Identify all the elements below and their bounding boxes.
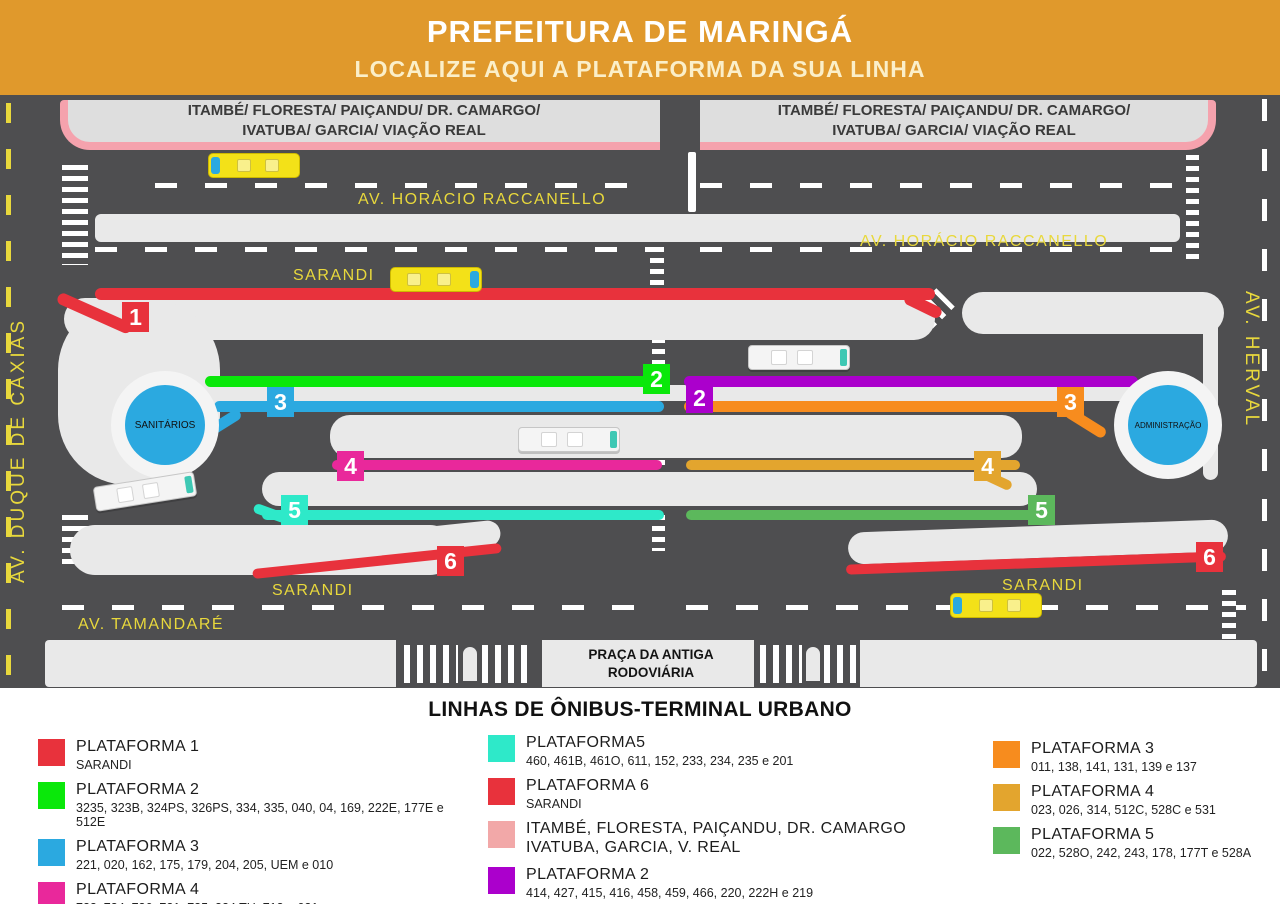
legend-item-title: PLATAFORMA 2 — [526, 866, 813, 884]
sanitarios-circle: SANITÁRIOS — [125, 385, 205, 465]
street-label-duque-de-caxias: AV. DUQUE DE CAXIAS — [8, 300, 44, 600]
platform-badge-5-green: 5 — [1028, 495, 1055, 525]
praca-label: PRAÇA DA ANTIGA RODOVIÁRIA — [545, 640, 757, 687]
legend-item-routes: IVATUBA, GARCIA, V. REAL — [526, 839, 906, 857]
platform-line-4-gold — [686, 460, 1020, 470]
bollard — [463, 647, 477, 681]
legend-item-routes: 460, 461B, 461O, 611, 152, 233, 234, 235… — [526, 754, 793, 768]
crosswalk — [824, 645, 858, 683]
legend-item-title: ITAMBÉ, FLORESTA, PAIÇANDU, DR. CAMARGO — [526, 820, 906, 838]
legend-item: PLATAFORMA 4722, 734, 736, 721, 735, 324… — [38, 881, 468, 904]
legend-swatch — [488, 778, 515, 805]
legend-item-title: PLATAFORMA 4 — [1031, 783, 1216, 801]
lane-divider — [700, 183, 1172, 188]
legend-item: PLATAFORMA 1SARANDI — [38, 738, 468, 772]
legend-column-1: PLATAFORMA 1SARANDI PLATAFORMA 23235, 32… — [38, 738, 468, 904]
legend-item-routes: 3235, 323B, 324PS, 326PS, 334, 335, 040,… — [76, 801, 468, 830]
destination-banner-right: ITAMBÉ/ FLORESTA/ PAIÇANDU/ DR. CAMARGO/… — [700, 100, 1216, 150]
legend-swatch — [488, 867, 515, 894]
bus-icon — [748, 345, 850, 370]
destination-banner-right-line1: ITAMBÉ/ FLORESTA/ PAIÇANDU/ DR. CAMARGO/ — [700, 101, 1208, 121]
platform-island — [330, 415, 1022, 458]
crosswalk — [62, 165, 88, 265]
platform-badge-3-orange: 3 — [1057, 387, 1084, 417]
legend-item-title: PLATAFORMA 3 — [1031, 740, 1197, 758]
platform-line-3-orange — [684, 401, 1082, 412]
legend-swatch — [38, 839, 65, 866]
platform-line-2-purple — [684, 376, 1138, 387]
lane-divider — [95, 247, 652, 252]
legend-title: LINHAS DE ÔNIBUS-TERMINAL URBANO — [0, 698, 1280, 722]
platform-badge-6-left: 6 — [437, 546, 464, 576]
street-label-sarandi-top: SARANDI — [293, 267, 375, 285]
platform-badge-5-cyan: 5 — [281, 495, 308, 525]
platform-line-5-cyan — [262, 510, 664, 520]
legend-item-title: PLATAFORMA 5 — [1031, 826, 1251, 844]
page-subtitle: LOCALIZE AQUI A PLATAFORMA DA SUA LINHA — [0, 56, 1280, 83]
lane-divider — [62, 605, 650, 610]
legend-swatch — [38, 882, 65, 904]
page-title: PREFEITURA DE MARINGÁ — [0, 0, 1280, 50]
destination-banner-right-line2: IVATUBA/ GARCIA/ VIAÇÃO REAL — [700, 121, 1208, 141]
legend-item: PLATAFORMA 3221, 020, 162, 175, 179, 204… — [38, 838, 468, 872]
praca-label-line1: PRAÇA DA ANTIGA — [545, 646, 757, 664]
praca-label-line2: RODOVIÁRIA — [545, 664, 757, 682]
header-banner: PREFEITURA DE MARINGÁ LOCALIZE AQUI A PL… — [0, 0, 1280, 95]
legend-item-routes: SARANDI — [76, 758, 199, 772]
legend-item: PLATAFORMA 6SARANDI — [488, 777, 948, 811]
legend-item-title: PLATAFORMA 4 — [76, 881, 318, 899]
bus-icon — [208, 153, 300, 178]
legend-swatch — [993, 827, 1020, 854]
bollard — [806, 647, 820, 681]
legend-item: PLATAFORMA 23235, 323B, 324PS, 326PS, 33… — [38, 781, 468, 829]
legend-item: PLATAFORMA 4023, 026, 314, 512C, 528C e … — [993, 783, 1263, 817]
legend-swatch — [488, 735, 515, 762]
legend-item-routes: 023, 026, 314, 512C, 528C e 531 — [1031, 803, 1216, 817]
legend-item-title: PLATAFORMA 1 — [76, 738, 199, 756]
legend-item-routes: 022, 528O, 242, 243, 178, 177T e 528A — [1031, 846, 1251, 860]
platform-badge-4-gold: 4 — [974, 451, 1001, 481]
legend-swatch — [993, 741, 1020, 768]
bus-icon — [950, 593, 1042, 618]
legend-item: PLATAFORMA 5022, 528O, 242, 243, 178, 17… — [993, 826, 1263, 860]
platform-line-5-green — [686, 510, 1038, 520]
street-label-tamandare: AV. TAMANDARÉ — [78, 616, 224, 634]
platform-badge-6-right: 6 — [1196, 542, 1223, 572]
destination-banner-left-line2: IVATUBA/ GARCIA/ VIAÇÃO REAL — [68, 121, 660, 141]
street-label-herval: AV. HERVAL — [1230, 180, 1262, 540]
administracao-circle: ADMINISTRAÇÃO — [1128, 385, 1208, 465]
legend-item-title: PLATAFORMA 6 — [526, 777, 649, 795]
street-label-sarandi-bottom-left: SARANDI — [272, 582, 354, 600]
platform-island — [262, 472, 1037, 506]
platform-badge-2-purple: 2 — [686, 383, 713, 413]
platform-island — [962, 292, 1224, 334]
median-bar — [688, 152, 696, 212]
legend-item: PLATAFORMA 3011, 138, 141, 131, 139 e 13… — [993, 740, 1263, 774]
legend-item: PLATAFORMA 2414, 427, 415, 416, 458, 459… — [488, 866, 948, 900]
street-label-horacio-raccanello-1: AV. HORÁCIO RACCANELLO — [358, 191, 606, 209]
legend-item-routes: 221, 020, 162, 175, 179, 204, 205, UEM e… — [76, 858, 333, 872]
legend-panel: LINHAS DE ÔNIBUS-TERMINAL URBANO PLATAFO… — [0, 688, 1280, 904]
legend-item: PLATAFORMA5460, 461B, 461O, 611, 152, 23… — [488, 734, 948, 768]
lane-divider — [1262, 99, 1267, 681]
platform-line-1 — [95, 288, 935, 300]
crosswalk — [404, 645, 458, 683]
platform-badge-4-magenta: 4 — [337, 451, 364, 481]
lane-divider — [155, 183, 655, 188]
destination-banner-left: ITAMBÉ/ FLORESTA/ PAIÇANDU/ DR. CAMARGO/… — [60, 100, 660, 150]
crosswalk — [652, 515, 665, 551]
crosswalk — [760, 645, 802, 683]
legend-swatch — [488, 821, 515, 848]
legend-item-routes: 414, 427, 415, 416, 458, 459, 466, 220, … — [526, 886, 813, 900]
platform-island — [212, 385, 1138, 401]
legend-swatch — [993, 784, 1020, 811]
legend-item: ITAMBÉ, FLORESTA, PAIÇANDU, DR. CAMARGOI… — [488, 820, 948, 857]
legend-column-2: PLATAFORMA5460, 461B, 461O, 611, 152, 23… — [488, 734, 948, 900]
platform-line-4-magenta — [332, 460, 662, 470]
platform-badge-3-blue: 3 — [267, 387, 294, 417]
terminal-map: ITAMBÉ/ FLORESTA/ PAIÇANDU/ DR. CAMARGO/… — [0, 95, 1280, 688]
legend-item-title: PLATAFORMA5 — [526, 734, 793, 752]
legend-column-3: PLATAFORMA 3011, 138, 141, 131, 139 e 13… — [993, 740, 1263, 860]
crosswalk — [1186, 155, 1199, 260]
legend-item-routes: SARANDI — [526, 797, 649, 811]
bus-icon — [518, 427, 620, 452]
legend-item-title: PLATAFORMA 3 — [76, 838, 333, 856]
legend-item-title: PLATAFORMA 2 — [76, 781, 468, 799]
platform-badge-2-green: 2 — [643, 364, 670, 394]
legend-swatch — [38, 739, 65, 766]
bus-icon — [390, 267, 482, 292]
terminal-platform-poster: PREFEITURA DE MARINGÁ LOCALIZE AQUI A PL… — [0, 0, 1280, 904]
street-label-horacio-raccanello-2: AV. HORÁCIO RACCANELLO — [860, 233, 1108, 251]
crosswalk — [482, 645, 534, 683]
legend-swatch — [38, 782, 65, 809]
destination-banner-left-line1: ITAMBÉ/ FLORESTA/ PAIÇANDU/ DR. CAMARGO/ — [68, 101, 660, 121]
platform-badge-1: 1 — [122, 302, 149, 332]
legend-item-routes: 011, 138, 141, 131, 139 e 137 — [1031, 760, 1197, 774]
platform-line-2-green — [205, 376, 665, 387]
